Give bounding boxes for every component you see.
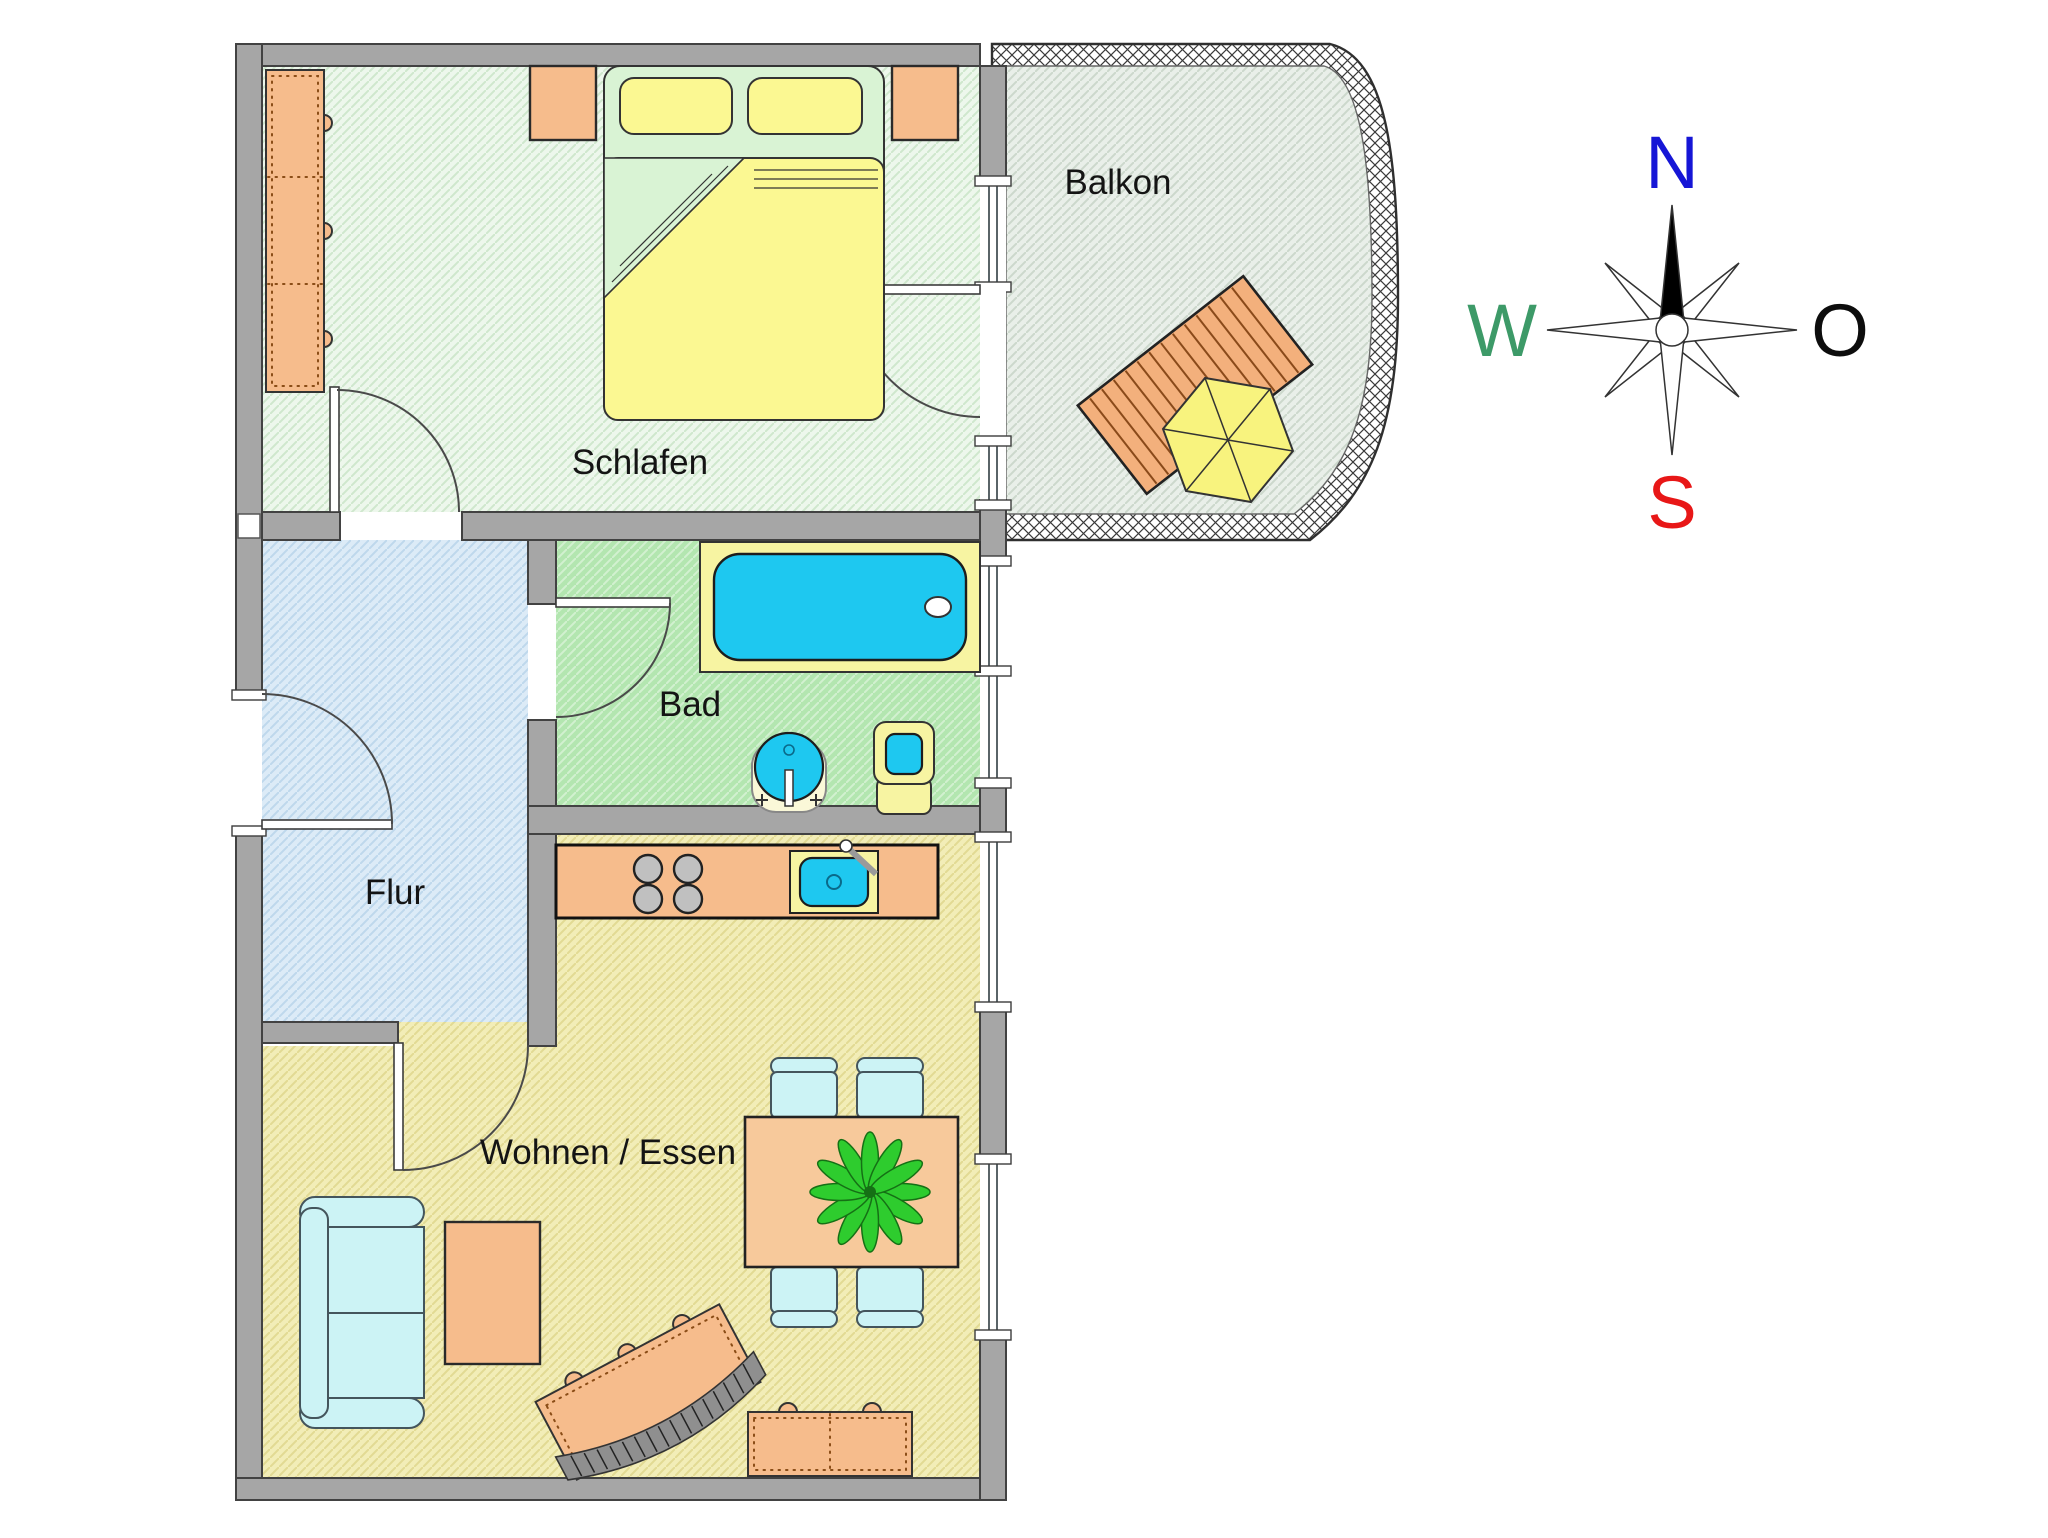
compass-rose-icon: N S W O — [1467, 121, 1869, 544]
flur-floor — [262, 540, 528, 1022]
basin-tap — [785, 770, 793, 806]
compass-north-needle — [1660, 205, 1684, 322]
dining-chair — [771, 1267, 837, 1327]
window-living — [975, 1154, 1011, 1340]
nightstand-left — [530, 66, 596, 140]
pillow — [620, 78, 732, 134]
toilet — [874, 722, 934, 814]
coffee-table — [445, 1222, 540, 1364]
kitchen-counter — [556, 840, 938, 918]
wall-left-lower — [236, 830, 262, 1500]
dining-chair — [771, 1058, 837, 1118]
floorplan-drawing: Balkon — [0, 0, 2048, 1538]
tub-drain — [925, 597, 951, 617]
wall-left-upper — [236, 44, 262, 698]
entrance-opening — [232, 690, 266, 836]
dining-chair — [857, 1058, 923, 1118]
double-bed — [604, 66, 884, 420]
window-kitchen — [975, 832, 1011, 1012]
flur-label: Flur — [365, 873, 426, 912]
pillow — [748, 78, 862, 134]
wall-niche — [238, 514, 260, 538]
compass-label-north: N — [1645, 121, 1698, 204]
dining-chair — [857, 1267, 923, 1327]
bad-label: Bad — [659, 685, 721, 724]
compass-label-west: W — [1467, 289, 1537, 372]
sideboard — [748, 1403, 912, 1476]
window-balcony-lower — [975, 436, 1011, 510]
schlafen-label: Schlafen — [572, 443, 708, 482]
kitchen-sink — [790, 840, 878, 913]
bathtub — [700, 542, 980, 672]
room-balkon: Balkon — [992, 44, 1398, 540]
balcony-door-opening — [980, 288, 1006, 440]
window-balcony-upper — [975, 176, 1011, 292]
wardrobe — [266, 70, 332, 392]
sofa — [300, 1197, 424, 1428]
nightstand-right — [892, 66, 958, 140]
wash-basin — [752, 733, 826, 812]
balkon-label: Balkon — [1064, 163, 1171, 202]
compass-label-east: O — [1811, 289, 1869, 372]
wall-bottom — [236, 1478, 1006, 1500]
wall-top — [236, 44, 980, 66]
floorplan-page: Balkon — [0, 0, 2048, 1538]
wohnen-label: Wohnen / Essen — [480, 1133, 736, 1172]
compass-label-south: S — [1647, 461, 1696, 544]
